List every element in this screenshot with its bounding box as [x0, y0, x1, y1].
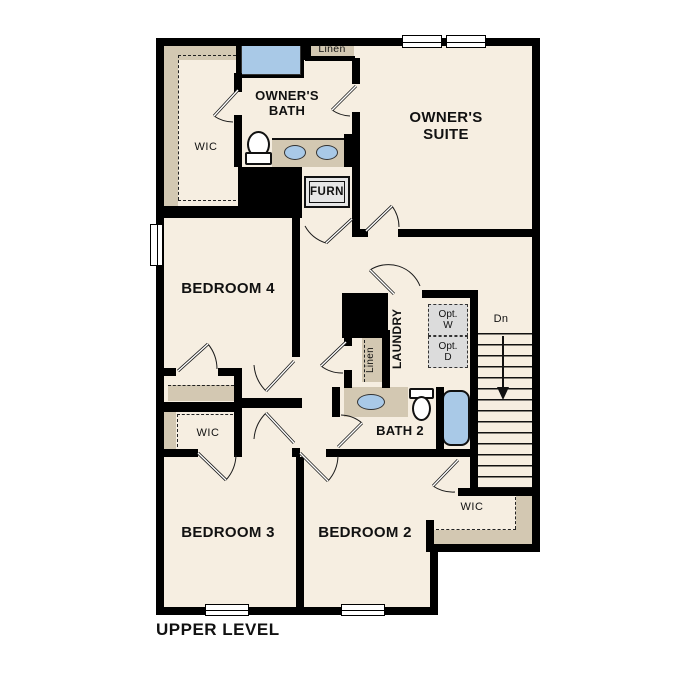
room-label-bedroom3-wic: WIC [186, 426, 230, 440]
door-owners-suite [366, 206, 392, 231]
door-bedroom3 [254, 413, 266, 439]
closet-label-linen-top: Linen [310, 42, 354, 57]
door-bedroom2-wic [433, 460, 458, 486]
room-label-bedroom4: BEDROOM 4 [164, 280, 292, 298]
door-linen-hall [321, 366, 343, 373]
room-label-laundry: LAUNDRY [389, 296, 406, 382]
floor-plan: FURN Opt. W Opt. D OWNER'S SUITE OWNER'S… [0, 0, 687, 687]
closet-label-linen-hall: Linen [363, 338, 378, 382]
door-bedroom4-closet [178, 344, 208, 371]
door-owners-bath-suite [332, 110, 350, 116]
stairs-down-label: Dn [487, 312, 515, 326]
door-bedroom2 [300, 453, 328, 481]
door-furnace-closet [305, 226, 326, 243]
door-swings [0, 0, 687, 687]
door-laundry [370, 265, 420, 286]
door-bedroom2-wic [433, 486, 455, 492]
door-laundry [370, 270, 394, 294]
door-bedroom2 [328, 456, 338, 481]
door-linen-hall [321, 342, 346, 366]
room-label-bedroom3: BEDROOM 3 [164, 524, 292, 542]
door-owners-wic [214, 116, 233, 122]
floor-plan-canvas: FURN Opt. W Opt. D OWNER'S SUITE OWNER'S… [0, 0, 687, 687]
door-owners-bath-suite [332, 86, 356, 110]
door-bath2 [338, 423, 362, 447]
door-owners-suite [392, 206, 399, 227]
door-bath2 [341, 415, 362, 423]
door-furnace-closet [326, 219, 352, 243]
room-label-owners-bath: OWNER'S BATH [240, 86, 334, 122]
room-label-owners-suite: OWNER'S SUITE [396, 104, 496, 150]
door-bedroom4 [266, 361, 294, 391]
room-label-bedroom2-wic: WIC [450, 500, 494, 514]
door-owners-wic [214, 90, 238, 116]
door-bedroom3-wic [198, 453, 226, 480]
room-label-owners-wic: WIC [184, 140, 228, 154]
room-label-bath2: BATH 2 [362, 423, 438, 439]
door-bedroom3-wic [226, 455, 236, 480]
room-label-bedroom2: BEDROOM 2 [302, 524, 428, 542]
door-bedroom4-closet [208, 344, 217, 369]
plan-title: UPPER LEVEL [156, 619, 376, 641]
door-bedroom4 [254, 365, 266, 391]
door-bedroom3 [266, 413, 294, 443]
